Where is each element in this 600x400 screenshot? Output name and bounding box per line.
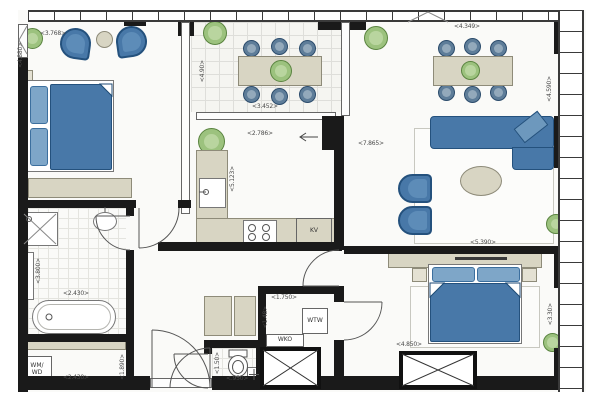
wall-bedroom2-north (344, 246, 558, 254)
fridge-box: KV (296, 218, 332, 244)
dining-chair (438, 40, 455, 57)
dimension-label: <.950> (226, 375, 248, 382)
wall-bedroom1-south-a (18, 200, 136, 208)
bathtub-inner (37, 304, 111, 330)
nightstand (412, 268, 427, 282)
dining-chair (464, 86, 481, 103)
wko-label: WKO (278, 337, 292, 344)
plant-icon (203, 21, 227, 45)
wardrobe-sliding-door (455, 257, 507, 260)
glass-facade-right (558, 10, 584, 392)
wall-living-west-a (334, 116, 344, 250)
stove-burner (262, 233, 270, 241)
dimension-label: <1.750> (271, 294, 297, 301)
stove-burner (262, 224, 270, 232)
wall-bathroom-east (126, 250, 134, 340)
bed1-pillow (30, 86, 48, 124)
plant-icon (364, 26, 388, 50)
wall-living-west-c (334, 340, 344, 390)
washbasin (93, 212, 117, 231)
wall-bedroom1-south-b (178, 200, 191, 208)
dimension-label: <7.865> (358, 140, 384, 147)
dimension-label: <2.430> (63, 290, 89, 297)
wall-bathroom-east-stub (126, 208, 134, 216)
entrance-threshold (150, 378, 212, 388)
dimension-label: <3.452> (252, 103, 278, 110)
coffee-table (460, 166, 502, 196)
balcony-sliding-door (196, 112, 336, 120)
plant-icon (270, 60, 292, 82)
kitchen-sink (199, 178, 226, 208)
dimension-label: <4.349> (454, 23, 480, 30)
dining-chair (243, 86, 260, 103)
wall-toilet-west (204, 340, 212, 354)
wall-toilet-east (256, 340, 264, 390)
dining-chair (490, 40, 507, 57)
dimension-label: <2.430> (63, 374, 89, 381)
dining-chair (243, 40, 260, 57)
wall-kitchen-south (158, 242, 342, 251)
bedroom1-wardrobe (28, 178, 132, 198)
wall-living-west-b (334, 286, 344, 302)
dimension-label: <4.590> (546, 76, 553, 102)
dining-chair (299, 40, 316, 57)
dining-chair (299, 86, 316, 103)
dimension-label: <5.123> (229, 166, 236, 192)
dining-chair (271, 38, 288, 55)
dimension-label: <4.880> (17, 42, 24, 68)
dimension-label: <1.48> (262, 306, 269, 328)
bed2-duvet (430, 283, 520, 342)
dimension-label: <3.800> (35, 258, 42, 284)
bedroom1-balcony-partition (181, 22, 190, 214)
heat-recovery-unit-box: WTW (302, 308, 328, 334)
bed2-pillow (477, 267, 520, 282)
balcony-dining-partition (341, 22, 350, 116)
side-table (96, 31, 113, 48)
stove-burner (248, 224, 256, 232)
dimension-label: <3.30> (547, 303, 554, 325)
armchair (398, 206, 432, 235)
bed1-pillow (30, 128, 48, 166)
glass-facade-top (28, 10, 558, 22)
dimension-label: <4.850> (396, 341, 422, 348)
dining-chair (490, 84, 507, 101)
wall-bottom-right (212, 376, 584, 390)
bed2-pillow (432, 267, 475, 282)
fridge-label: KV (310, 228, 318, 235)
heat-cold-storage-box: WKO (266, 334, 304, 347)
dimension-label: <5.390> (470, 239, 496, 246)
sofa-chaise (512, 147, 554, 170)
nightstand (522, 268, 537, 282)
dining-chair (464, 38, 481, 55)
dimension-label: <4.90> (199, 60, 206, 82)
wall-bathroom-south (18, 334, 126, 342)
plant-icon (461, 61, 480, 80)
bed1-duvet (50, 84, 112, 170)
apartment-floor-plan: KV WM/ WD WTW WKO (0, 0, 600, 400)
wtw-label: WTW (307, 318, 323, 325)
dimension-label: <1.50> (214, 352, 221, 374)
dining-chair (438, 84, 455, 101)
dimension-label: <3.768> (40, 30, 66, 37)
hall-closet (204, 296, 232, 336)
dimension-label: <1.890> (119, 354, 126, 380)
armchair (398, 174, 432, 203)
wall-laundry-east (126, 340, 134, 390)
stove-burner (248, 233, 256, 241)
dimension-label: <2.786> (247, 130, 273, 137)
hall-closet (234, 296, 256, 336)
wall-tech-north (258, 286, 334, 294)
